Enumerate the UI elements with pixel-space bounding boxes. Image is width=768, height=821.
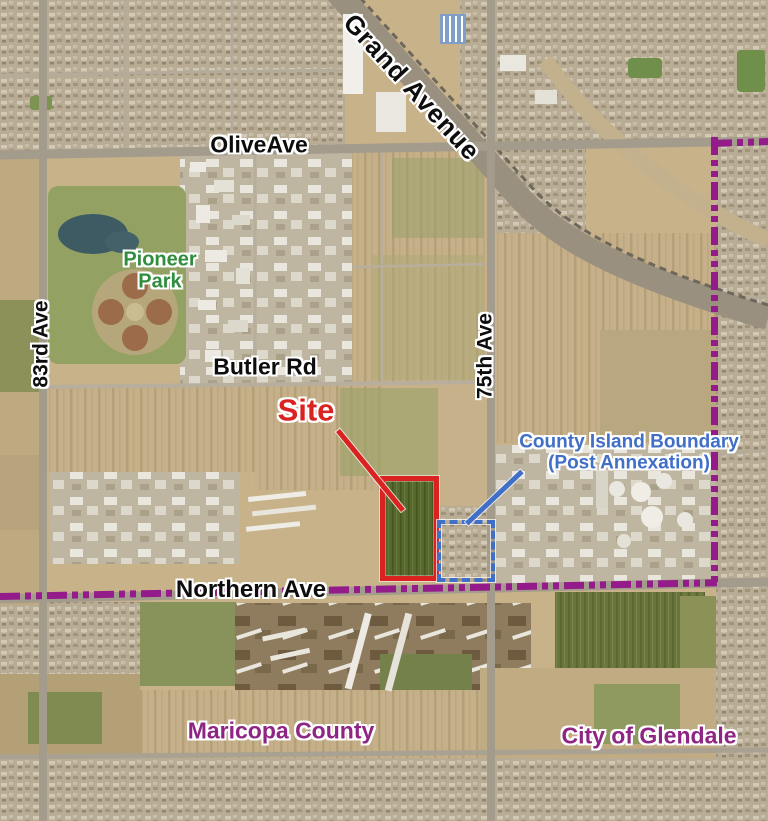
pioneer-park-label: Pioneer Park [123,249,196,292]
site-label: Site [278,393,335,426]
satellite-basemap [0,0,768,821]
county-boundary-line-vertical [711,137,718,587]
aerial-map: Grand Avenue OliveAve Pioneer Park 83rd … [0,0,768,821]
county-island-rect [437,520,495,582]
city-of-glendale-label: City of Glendale [561,724,736,749]
maricopa-county-label: Maricopa County [188,719,375,744]
county-island-line2: (Post Annexation) [519,453,739,474]
83rd-ave-label: 83rd Ave [31,300,54,387]
northern-ave-label: Northern Ave [176,577,326,603]
county-island-boundary-label: County Island Boundary (Post Annexation) [519,432,739,473]
pioneer-park-line1: Pioneer [123,249,196,271]
butler-rd-label: Butler Rd [213,355,317,380]
pioneer-park-line2: Park [123,271,196,293]
county-island-line1: County Island Boundary [519,432,739,453]
75th-ave-label: 75th Ave [475,313,498,399]
olive-ave-label: OliveAve [210,133,308,158]
